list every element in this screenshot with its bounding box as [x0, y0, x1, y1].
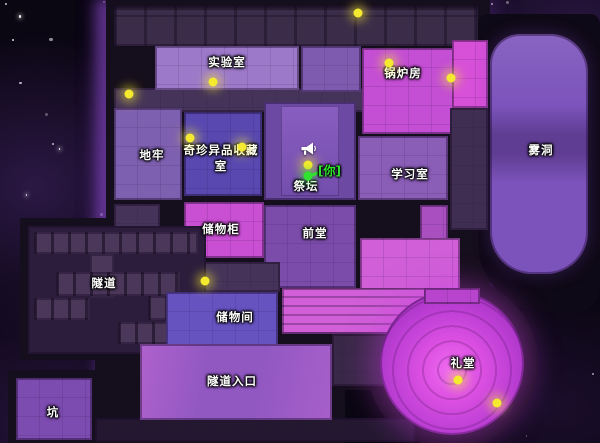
markers-layer: [你]: [0, 0, 600, 443]
megaphone-icon: [300, 142, 317, 161]
player-name-label: [你]: [318, 162, 341, 179]
game-map-screen: 实验室锅炉房地牢奇珍异品收藏室祭坛学习室雾洞储物柜前堂隧道储物间隧道入口坑礼堂 …: [0, 0, 600, 443]
